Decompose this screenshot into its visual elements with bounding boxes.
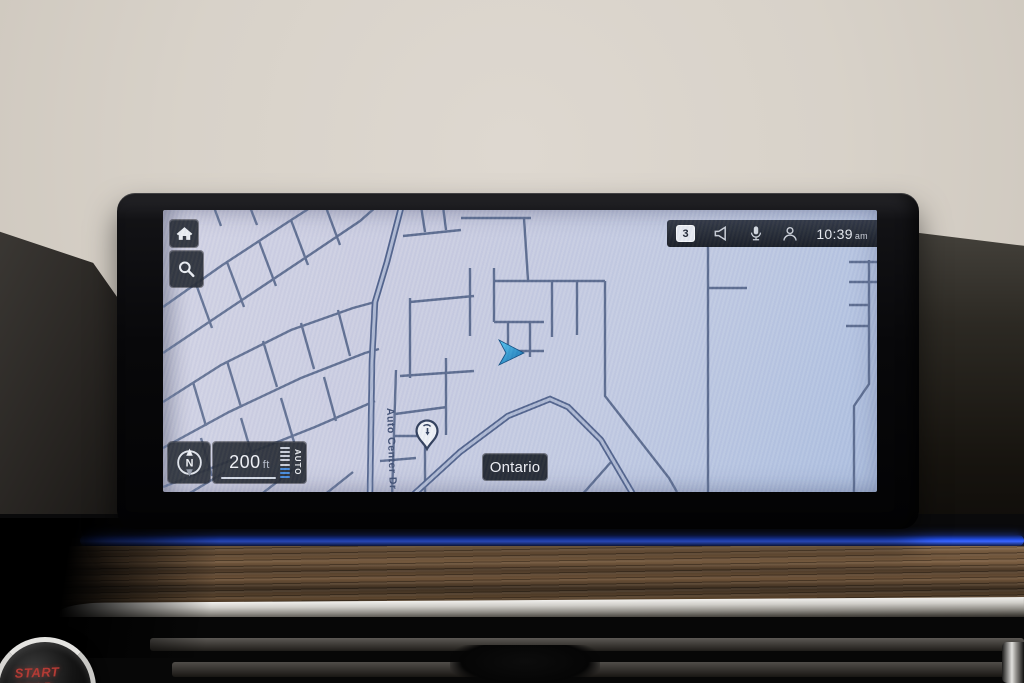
scale-bar <box>221 477 276 479</box>
scale-value: 200 <box>229 452 261 472</box>
right-control-fragment <box>1002 642 1024 683</box>
place-label-ontario: Ontario <box>483 454 547 480</box>
clock: 10:39am <box>816 226 868 242</box>
compass-north-label: N <box>185 458 193 470</box>
infotainment-screen-unit: Auto Center Dr <box>117 193 919 529</box>
poi-map-pin-icon[interactable] <box>417 421 438 450</box>
map-scale-control[interactable]: 200ft AUTO <box>213 442 306 483</box>
notification-count-badge[interactable]: 3 <box>676 225 695 242</box>
auto-zoom-label[interactable]: AUTO <box>292 445 303 480</box>
car-dashboard-scene: START STOP <box>0 0 1024 683</box>
search-button[interactable] <box>170 251 203 287</box>
street-label: Auto Center Dr <box>384 408 399 490</box>
compass-icon: N <box>174 447 205 478</box>
driver-profile-icon[interactable] <box>782 226 798 242</box>
vent-center-shadow <box>450 645 600 683</box>
start-stop-label: START STOP <box>15 665 61 683</box>
home-icon <box>176 226 193 241</box>
scale-readout: 200ft <box>219 445 280 480</box>
vehicle-location-arrow-icon <box>499 340 524 365</box>
microphone-icon[interactable] <box>748 225 764 242</box>
home-button[interactable] <box>170 220 198 247</box>
speaker-icon[interactable] <box>713 226 729 241</box>
ambient-light-strip <box>80 535 1024 546</box>
status-bar: 3 10:39am <box>667 220 877 247</box>
search-icon <box>177 260 196 279</box>
zoom-tick-scale[interactable] <box>280 445 292 480</box>
navigation-map-display[interactable]: Auto Center Dr <box>163 210 877 492</box>
compass-button[interactable]: N <box>168 442 210 483</box>
scale-unit: ft <box>263 459 270 471</box>
